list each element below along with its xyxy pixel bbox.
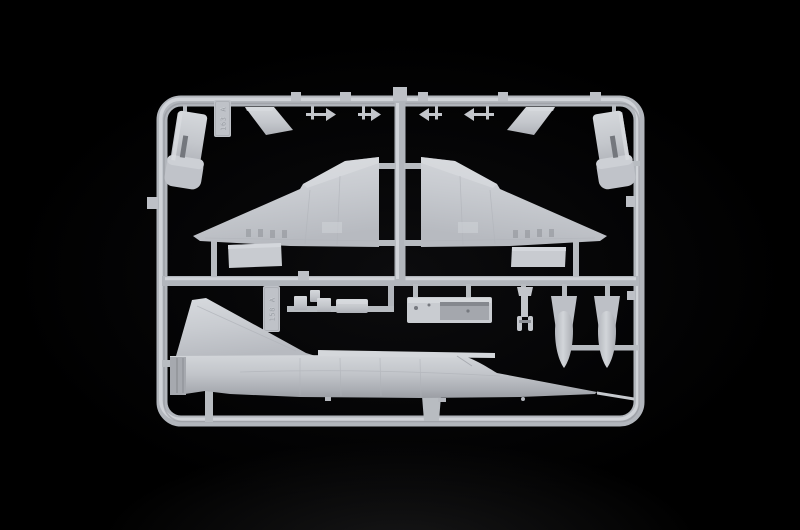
- drop-tank-right: [594, 296, 620, 368]
- part-delta-wing-left: [193, 157, 379, 247]
- part-sprue-tag-top: 163 A 163 A: [214, 100, 231, 137]
- center-runner-highlight: [396, 103, 399, 279]
- part-exhaust-duct-left: [163, 110, 211, 191]
- drop-tank-left: [551, 296, 577, 368]
- part-intake-ramp-right: [507, 107, 555, 135]
- part-exhaust-duct-right: [588, 110, 636, 191]
- exhaust-nozzle: [170, 357, 186, 395]
- part-small-fairings: [287, 290, 394, 313]
- sprue-tag-top-text: 163 A: [219, 107, 227, 131]
- sprue-photo-svg: 163 A 163 A: [0, 0, 800, 530]
- part-elevon-flap-right: [511, 247, 566, 267]
- pitot-probe: [597, 392, 634, 401]
- fuselage-body: [170, 355, 597, 399]
- part-intake-ramp-left: [245, 107, 293, 135]
- part-sprue-tag-bottom: 158 A 158 A: [263, 286, 280, 332]
- part-nose-gear-leg: [517, 287, 533, 331]
- part-cockpit-tub-box: [407, 297, 492, 323]
- part-delta-wing-right: [421, 157, 607, 247]
- model-kit-sprue-photo: 163 A 163 A: [0, 0, 800, 530]
- sprue-tag-bottom-text: 158 A: [268, 297, 276, 321]
- part-elevon-flap-left: [228, 243, 282, 268]
- part-drop-tanks: [551, 296, 620, 368]
